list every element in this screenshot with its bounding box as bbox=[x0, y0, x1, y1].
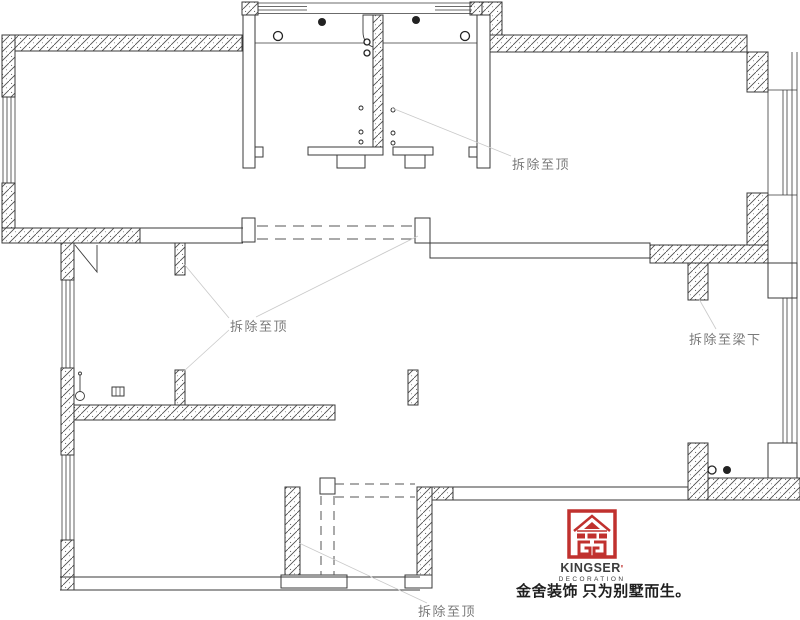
floor-plan-drawing bbox=[0, 0, 800, 620]
demolition-label-top: 拆除至顶 bbox=[512, 154, 570, 173]
brand-name: KINGSER' bbox=[558, 562, 626, 575]
floor-plan-page: 拆除至顶 拆除至顶 拆除至梁下 拆除至顶 KINGSER' DECORATION… bbox=[0, 0, 800, 620]
kingser-logo: KINGSER' DECORATION bbox=[558, 509, 626, 584]
hatched-walls bbox=[2, 2, 800, 590]
leader-lines bbox=[184, 108, 716, 603]
door-stop-icon bbox=[76, 372, 85, 401]
demolition-label-left: 拆除至顶 bbox=[230, 316, 288, 335]
dashed-removed-walls bbox=[257, 226, 415, 575]
kingser-logo-icon bbox=[567, 509, 617, 559]
brand-mark: ' bbox=[621, 564, 624, 575]
demolition-label-bottom: 拆除至顶 bbox=[418, 601, 476, 620]
demolition-label-beam: 拆除至梁下 bbox=[689, 329, 762, 348]
brand-tagline: 金舍装饰 只为别墅而生。 bbox=[516, 580, 691, 601]
windows bbox=[2, 3, 797, 540]
